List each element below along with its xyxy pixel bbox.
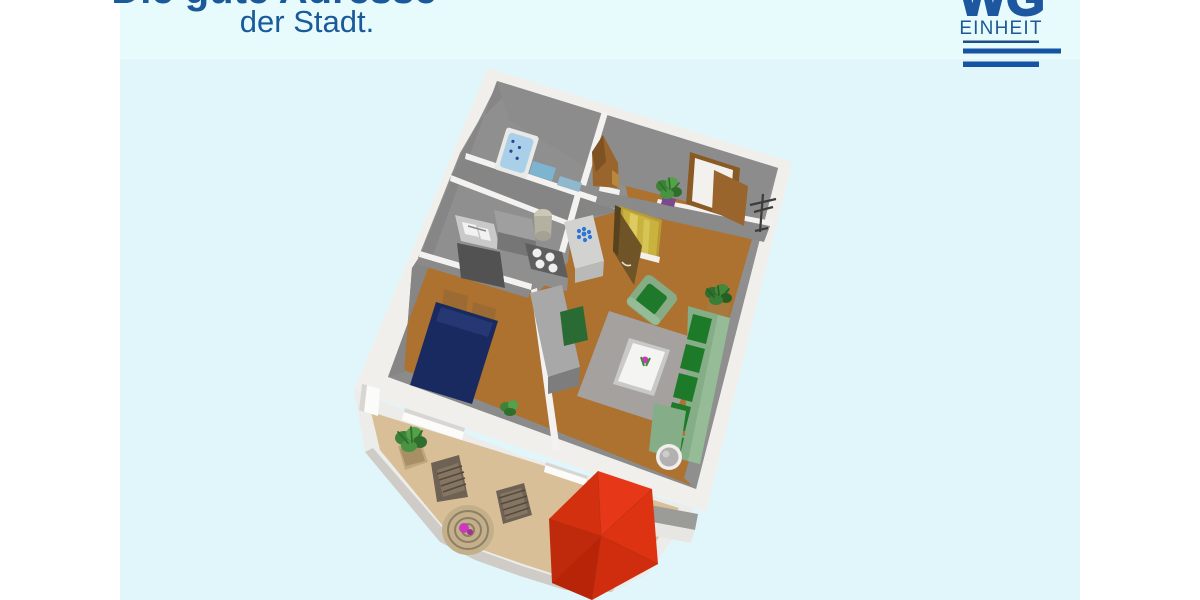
svg-text:der Stadt.: der Stadt. xyxy=(240,4,374,39)
svg-text:EINHEIT: EINHEIT xyxy=(959,18,1042,39)
